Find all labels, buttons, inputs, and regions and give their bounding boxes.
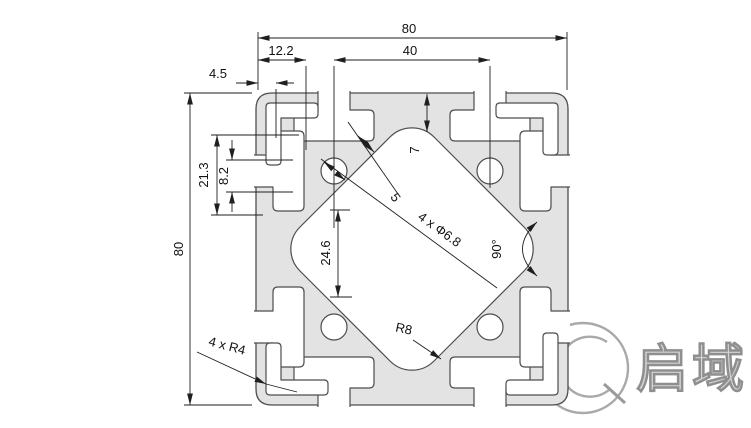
mounting-hole-bottom-left [321, 314, 347, 340]
dim-wall-thickness-label: 4.5 [209, 66, 227, 81]
mounting-hole-bottom-right [477, 314, 503, 340]
dim-web-angle-label: 90° [489, 239, 504, 259]
dim-overall-width-label: 80 [402, 21, 416, 36]
logo-text: 启域 [636, 341, 748, 399]
dim-overall-height: 80 [171, 93, 252, 405]
dim-corner-radius-label: 4 x R4 [207, 334, 247, 358]
dim-hole-spacing-label: 40 [403, 43, 417, 58]
profile-drawing-svg: 启域 80 [0, 0, 751, 428]
dim-slot-inner-width-label: 21.3 [196, 162, 211, 187]
dim-face-to-cavity-label: 7 [407, 146, 422, 153]
dim-center-cavity-label: 24.6 [318, 240, 333, 265]
dim-slot-opening-label: 8.2 [216, 167, 231, 185]
dim-slot-depth-label: 12.2 [268, 43, 293, 58]
drawing-canvas: 启域 80 [0, 0, 751, 428]
dim-overall-height-label: 80 [171, 242, 186, 256]
